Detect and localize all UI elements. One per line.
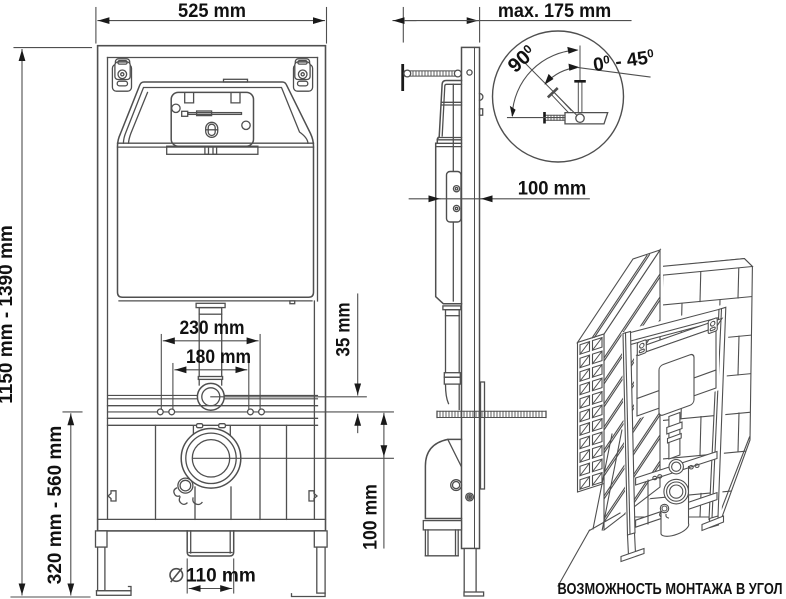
svg-text:100 mm: 100 mm bbox=[518, 177, 587, 198]
svg-text:180 mm: 180 mm bbox=[186, 345, 251, 367]
svg-text:100 mm: 100 mm bbox=[359, 484, 381, 550]
svg-text:230 mm: 230 mm bbox=[179, 316, 244, 338]
svg-text:ВОЗМОЖНОСТЬ МОНТАЖА В УГОЛ: ВОЗМОЖНОСТЬ МОНТАЖА В УГОЛ bbox=[558, 581, 783, 598]
svg-text:1150 mm - 1390 mm: 1150 mm - 1390 mm bbox=[0, 225, 17, 404]
svg-text:320 mm - 560 mm: 320 mm - 560 mm bbox=[45, 426, 66, 584]
svg-text:max. 175 mm: max. 175 mm bbox=[498, 0, 611, 21]
svg-text:110 mm: 110 mm bbox=[186, 566, 256, 587]
svg-text:35 mm: 35 mm bbox=[333, 302, 354, 356]
svg-text:525 mm: 525 mm bbox=[178, 0, 246, 21]
